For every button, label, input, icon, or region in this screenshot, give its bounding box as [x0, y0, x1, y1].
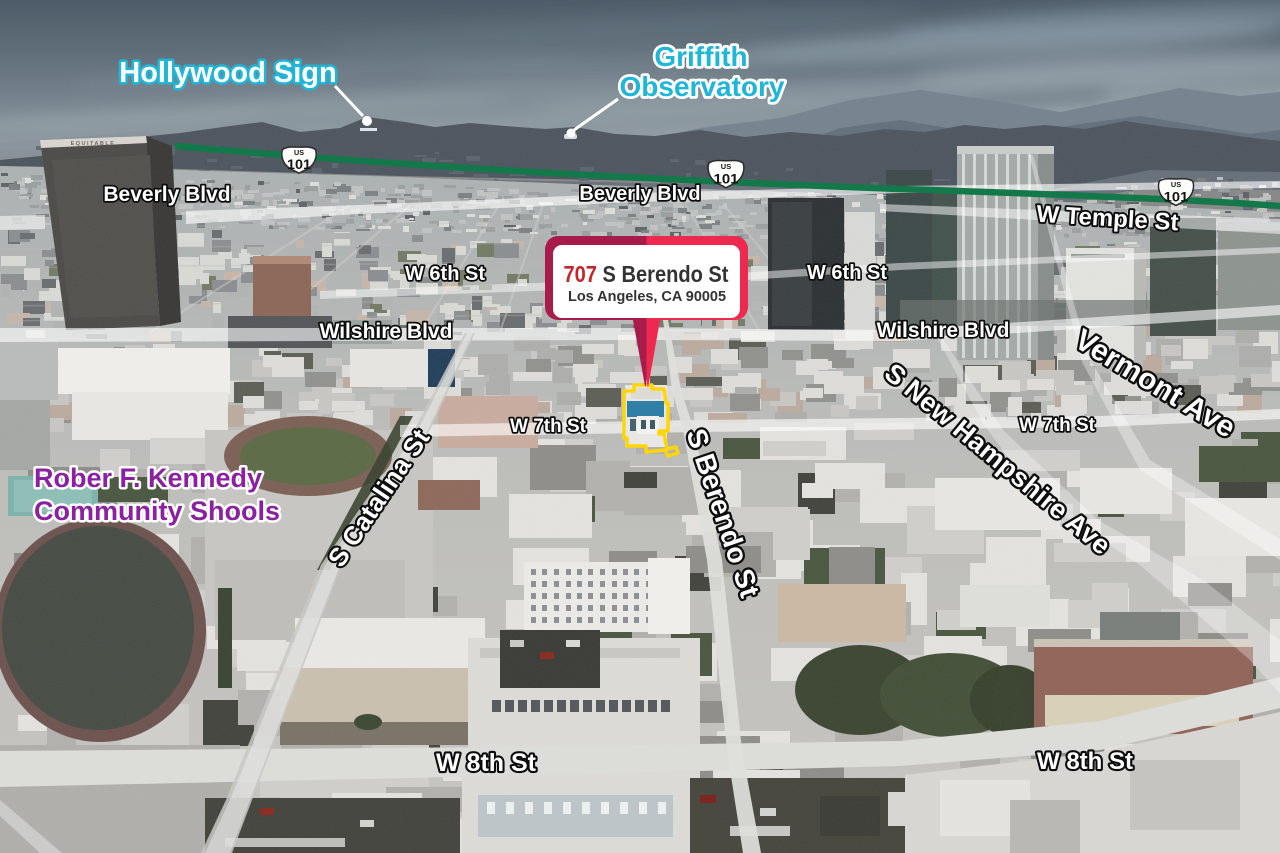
- svg-text:Observatory: Observatory: [620, 71, 785, 102]
- svg-text:US: US: [1171, 180, 1181, 189]
- svg-text:Beverly Blvd: Beverly Blvd: [103, 183, 230, 206]
- svg-text:W 7th St: W 7th St: [510, 416, 587, 437]
- svg-text:101: 101: [287, 157, 312, 172]
- svg-text:101: 101: [714, 171, 739, 187]
- svg-text:707 S Berendo St: 707 S Berendo St: [564, 261, 729, 287]
- svg-text:EQUITABLE: EQUITABLE: [71, 141, 116, 147]
- svg-text:Wilshire Blvd: Wilshire Blvd: [877, 319, 1010, 342]
- svg-text:W 8th St: W 8th St: [436, 749, 537, 777]
- svg-text:Hollywood Sign: Hollywood Sign: [119, 57, 337, 89]
- svg-text:Community Shools: Community Shools: [34, 496, 280, 526]
- svg-text:W 6th St: W 6th St: [405, 263, 485, 285]
- svg-text:Wilshire Blvd: Wilshire Blvd: [320, 320, 453, 343]
- svg-text:Griffith: Griffith: [654, 41, 747, 72]
- svg-text:Beverly Blvd: Beverly Blvd: [579, 183, 700, 205]
- svg-text:Los Angeles, CA 90005: Los Angeles, CA 90005: [568, 289, 726, 305]
- svg-text:Rober F. Kennedy: Rober F. Kennedy: [34, 463, 262, 493]
- svg-text:W 8th St: W 8th St: [1037, 748, 1133, 775]
- svg-text:W 7th St: W 7th St: [1019, 415, 1096, 436]
- svg-text:101: 101: [1164, 189, 1189, 204]
- svg-text:US: US: [294, 148, 304, 157]
- svg-text:W 6th St: W 6th St: [807, 262, 887, 284]
